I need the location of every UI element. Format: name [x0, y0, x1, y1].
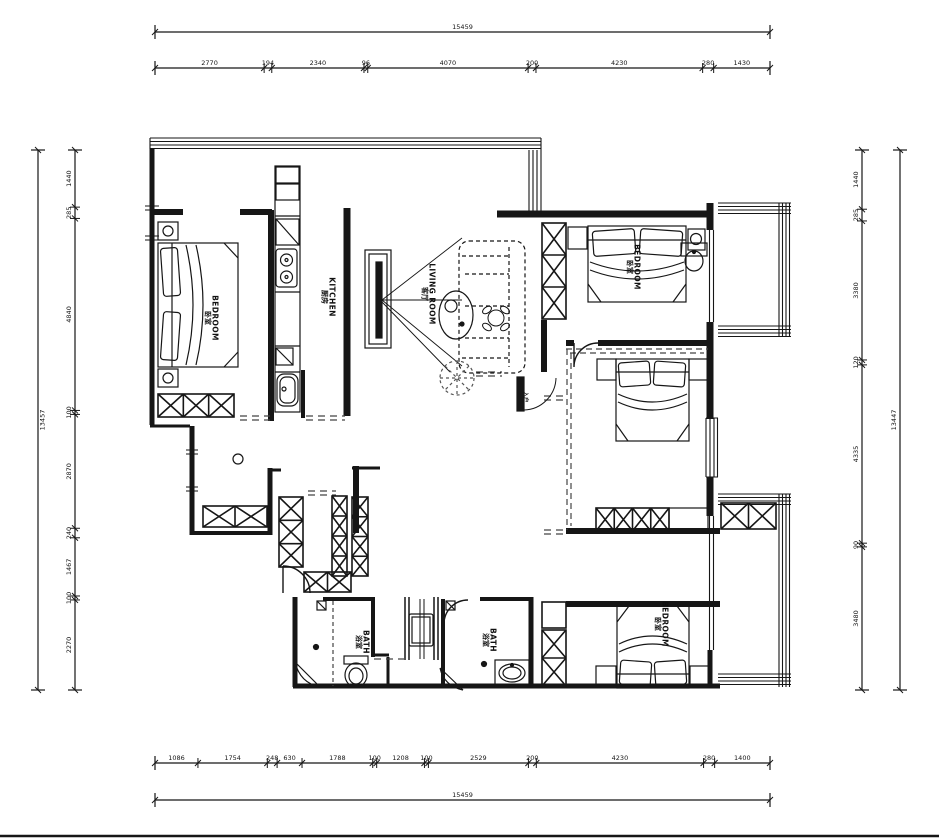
hall-marker — [233, 454, 243, 464]
x-cabinet — [304, 572, 351, 592]
hatched-cabinets — [158, 223, 776, 686]
dim-text: 120 — [852, 356, 860, 368]
drain-dot-right — [482, 662, 487, 667]
dashed-lines — [240, 349, 708, 686]
dim-text: 4070 — [440, 59, 457, 67]
walls — [150, 148, 720, 688]
dim-text: 3380 — [852, 282, 860, 299]
dim-text: 4230 — [611, 59, 628, 67]
dim-text: 13457 — [39, 410, 47, 431]
bath-sink — [495, 660, 529, 686]
dim-text: 100 — [65, 592, 73, 604]
x-cabinet — [721, 503, 776, 529]
dim-text: 15459 — [452, 791, 473, 799]
dim-text: 630 — [283, 754, 295, 762]
dim-text: 90 — [852, 541, 860, 549]
floor-plan-drawing: 1545927701942340964070200423028014301086… — [0, 0, 939, 838]
dim-text: 2870 — [65, 463, 73, 480]
door-swings — [283, 343, 598, 624]
dim-text: 2770 — [201, 59, 218, 67]
dim-text: 13447 — [890, 410, 898, 431]
dim-text: 1400 — [734, 754, 751, 762]
dim-text: 4840 — [65, 306, 73, 323]
entry-door — [517, 377, 556, 411]
floor-drain-left — [317, 601, 326, 610]
sofa — [459, 241, 525, 373]
dim-text: 1440 — [852, 171, 860, 188]
toilet — [344, 656, 368, 687]
x-cabinet — [203, 506, 267, 527]
dim-text: 1754 — [224, 754, 241, 762]
floor-plan-canvas: 1545927701942340964070200423028014301086… — [0, 0, 939, 838]
dim-text: 1208 — [392, 754, 409, 762]
bed-middle-right — [597, 359, 708, 441]
dim-text: 4230 — [612, 754, 629, 762]
dim-text: 1788 — [329, 754, 346, 762]
x-cabinet — [332, 496, 347, 576]
wardrobe-plain — [669, 508, 708, 531]
drain-dot-left — [314, 645, 319, 650]
bed-bottom-right — [596, 606, 709, 688]
dim-text: 4335 — [852, 446, 860, 463]
shower-corner-left — [295, 662, 320, 687]
plant — [481, 305, 511, 333]
dim-text: 100 — [65, 406, 73, 418]
x-cabinet — [542, 630, 566, 686]
tv-console — [365, 238, 462, 372]
x-cabinet — [158, 394, 234, 417]
washing-machine — [409, 599, 433, 659]
dim-text: 3480 — [852, 610, 860, 627]
dim-text: 1467 — [65, 559, 73, 576]
dim-text: 280 — [703, 754, 715, 762]
dim-text: 285 — [852, 209, 860, 221]
ceiling-feature — [440, 361, 474, 395]
wall-basin — [681, 243, 707, 271]
dimension-lines: 1545927701942340964070200423028014301086… — [31, 23, 907, 807]
dim-text: 2529 — [470, 754, 487, 762]
dim-text: 1440 — [65, 170, 73, 187]
x-cabinet — [596, 508, 669, 531]
x-cabinet — [542, 223, 566, 319]
kitchen-counter — [275, 166, 300, 412]
dim-text: 194 — [262, 59, 274, 67]
bed-top-right — [568, 226, 705, 302]
dim-text: 248 — [266, 754, 278, 762]
dim-text: 2340 — [310, 59, 327, 67]
dim-text: 1430 — [734, 59, 751, 67]
dim-text: 2270 — [65, 637, 73, 654]
bed-left — [158, 222, 238, 387]
dim-text: 1086 — [168, 754, 185, 762]
dim-text: 96 — [362, 59, 370, 67]
x-cabinet — [279, 497, 303, 567]
dim-text: 15459 — [452, 23, 473, 31]
coffee-table — [439, 291, 473, 339]
dim-text: 285 — [65, 207, 73, 219]
dim-text: 280 — [702, 59, 714, 67]
